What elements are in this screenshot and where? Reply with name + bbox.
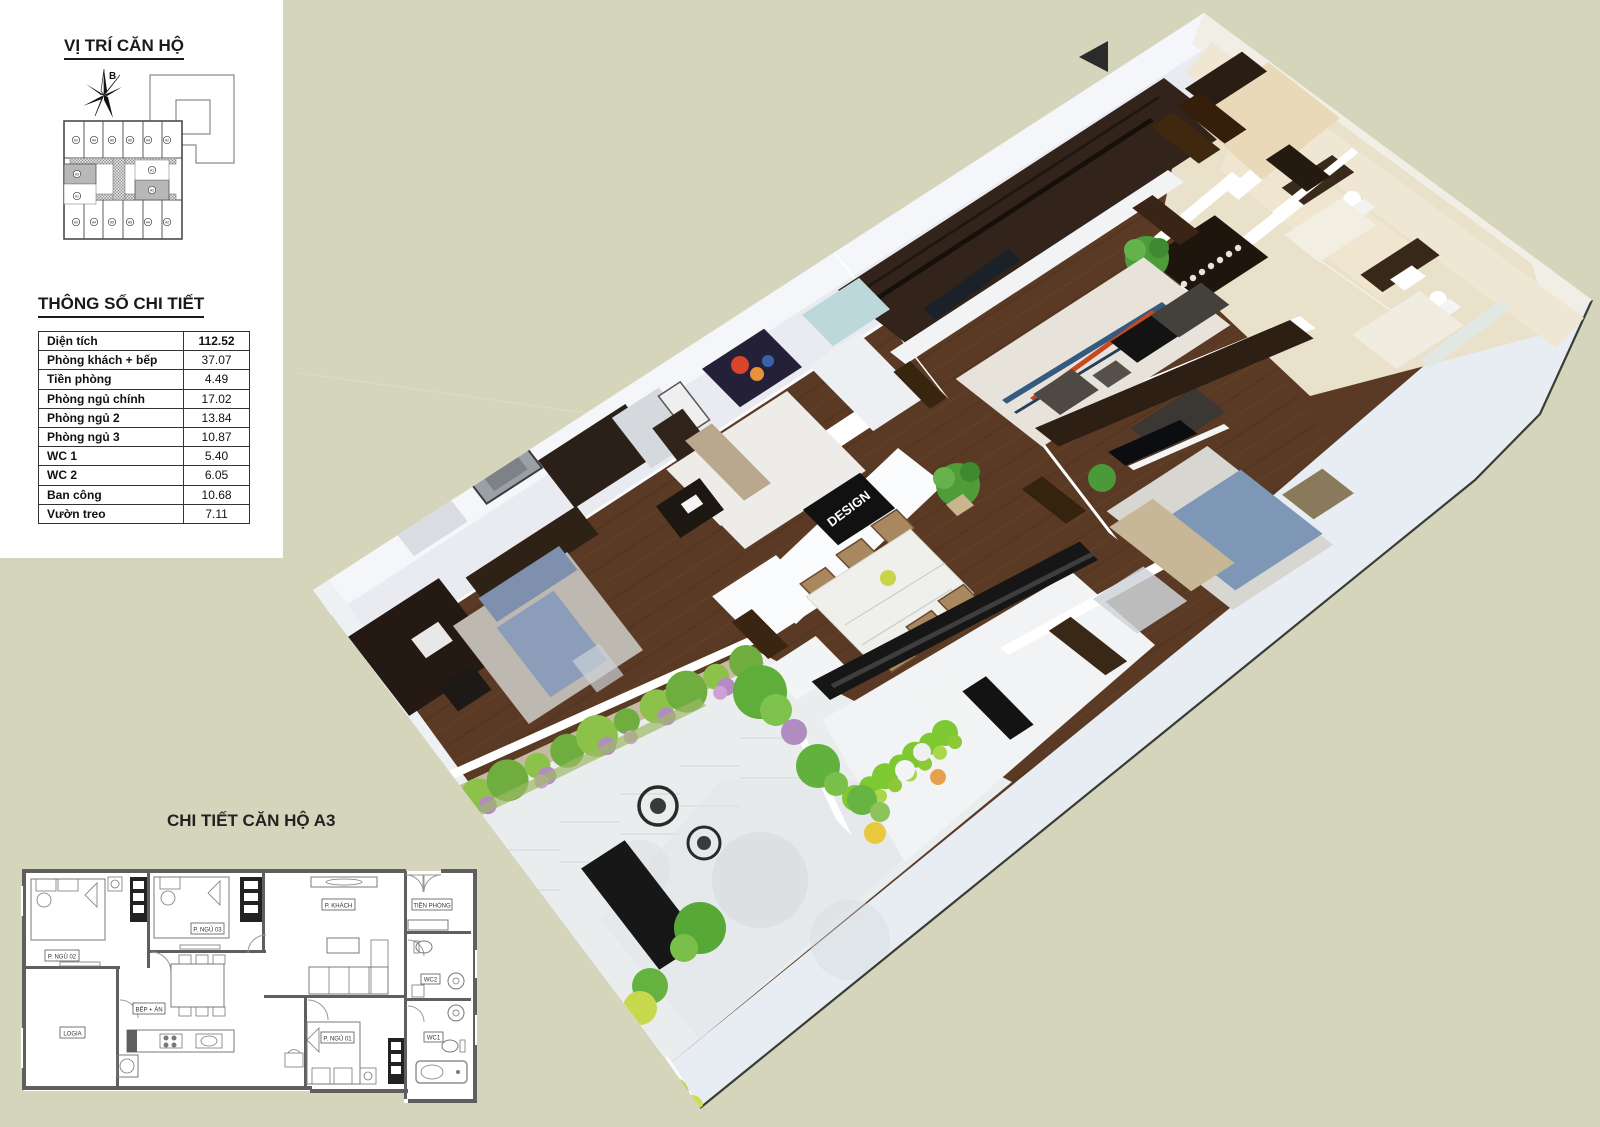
- svg-text:A2: A2: [165, 220, 169, 224]
- svg-text:A2: A2: [74, 138, 78, 142]
- svg-text:A4: A4: [146, 138, 150, 142]
- svg-text:A4: A4: [92, 220, 96, 224]
- svg-text:A2: A2: [74, 220, 78, 224]
- svg-text:A5: A5: [110, 138, 114, 142]
- svg-text:P. NGỦ 02: P. NGỦ 02: [48, 954, 77, 961]
- svg-text:P. NGỦ 03: P. NGỦ 03: [193, 927, 222, 934]
- svg-text:P. NGỦ 01: P. NGỦ 01: [323, 1036, 352, 1043]
- svg-text:A5: A5: [128, 138, 132, 142]
- svg-text:A4: A4: [92, 138, 96, 142]
- svg-text:WC2: WC2: [424, 978, 438, 984]
- svg-text:LOGIA: LOGIA: [63, 1032, 81, 1038]
- svg-text:A3: A3: [75, 172, 79, 176]
- svg-text:A1: A1: [150, 168, 154, 172]
- svg-text:A4: A4: [146, 220, 150, 224]
- svg-text:A3: A3: [150, 188, 154, 192]
- svg-text:P. KHÁCH: P. KHÁCH: [325, 903, 353, 910]
- svg-text:WC1: WC1: [427, 1036, 441, 1042]
- svg-text:A5: A5: [110, 220, 114, 224]
- svg-text:TIỀN PHÒNG: TIỀN PHÒNG: [413, 903, 451, 910]
- svg-text:A5: A5: [128, 220, 132, 224]
- svg-text:B: B: [109, 71, 116, 82]
- svg-text:BẾP + ĂN: BẾP + ĂN: [135, 1007, 162, 1014]
- svg-text:A2: A2: [165, 138, 169, 142]
- svg-text:A1: A1: [75, 194, 79, 198]
